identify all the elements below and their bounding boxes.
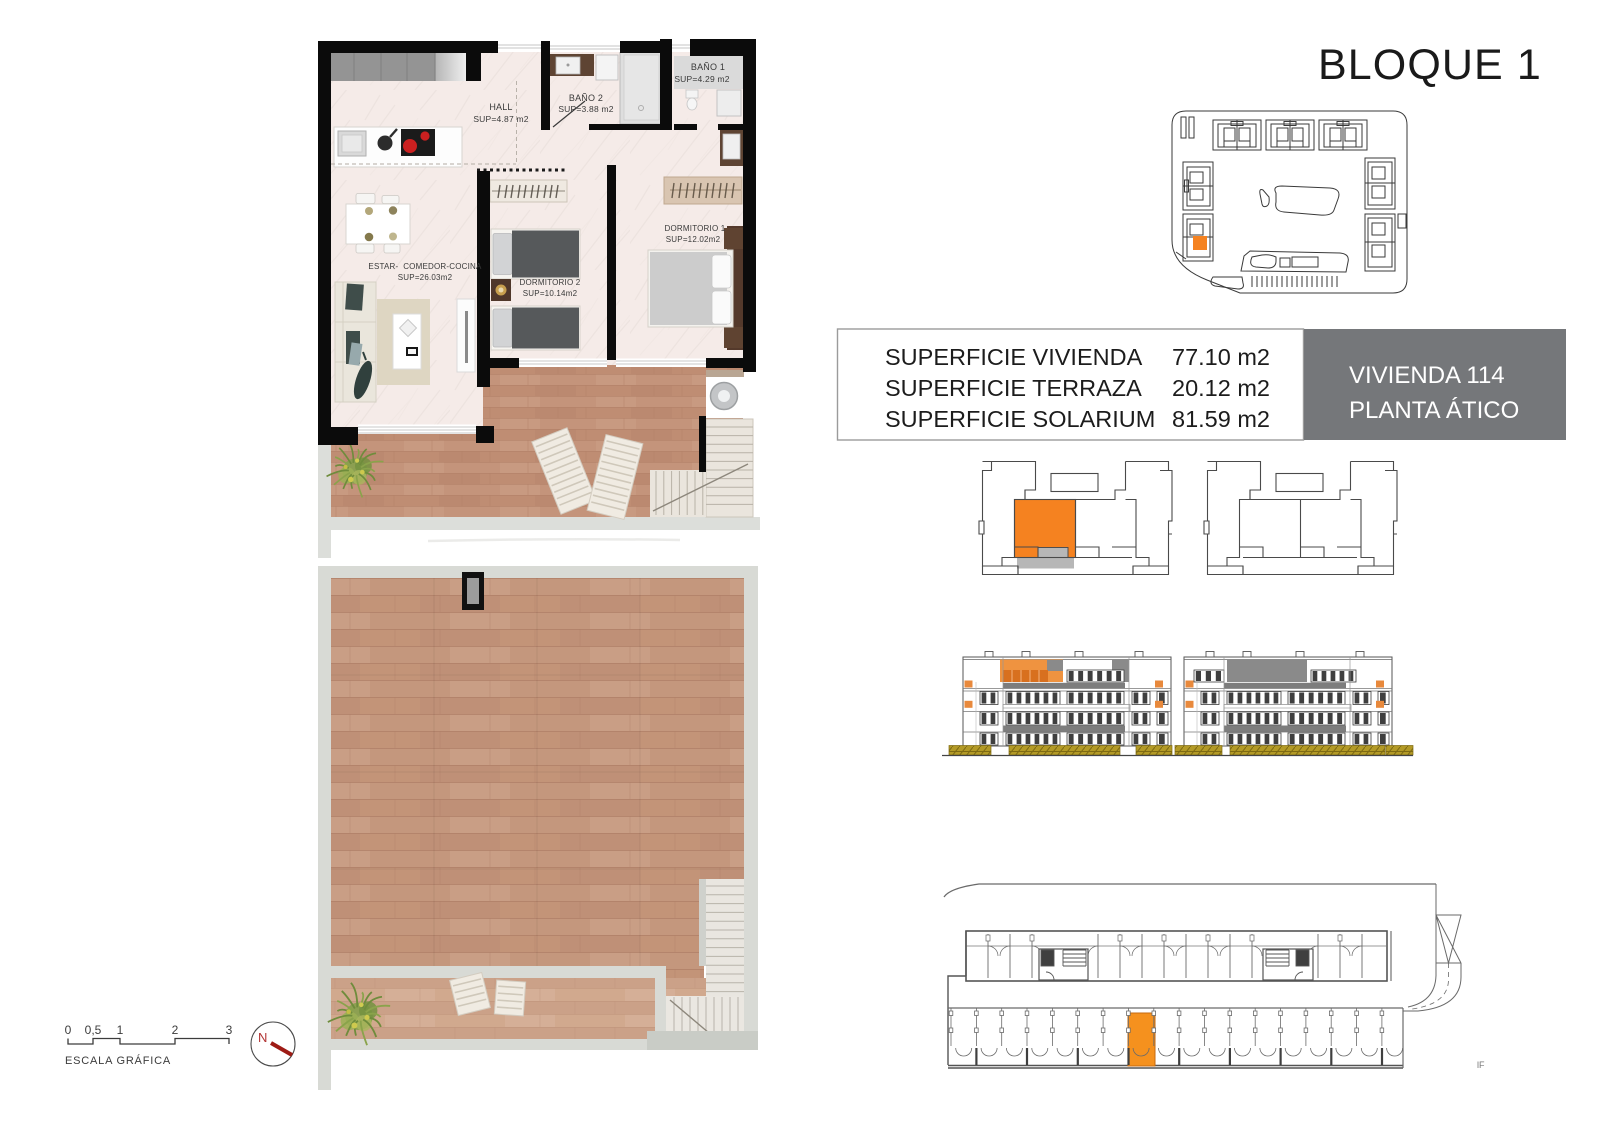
svg-text:DORMITORIO 1: DORMITORIO 1 — [665, 224, 726, 233]
svg-text:1: 1 — [117, 1023, 124, 1037]
svg-text:SUP=26.03m2: SUP=26.03m2 — [398, 273, 453, 282]
svg-text:SUP=12.02m2: SUP=12.02m2 — [666, 235, 721, 244]
svg-text:DORMITORIO 2: DORMITORIO 2 — [520, 278, 581, 287]
svg-text:N: N — [258, 1030, 267, 1045]
svg-text:lF: lF — [1477, 1060, 1485, 1070]
svg-text:ESCALA GRÁFICA: ESCALA GRÁFICA — [65, 1054, 171, 1067]
svg-text:77.10 m2: 77.10 m2 — [1172, 344, 1270, 370]
svg-text:81.59 m2: 81.59 m2 — [1172, 406, 1270, 432]
svg-text:PLANTA ÁTICO: PLANTA ÁTICO — [1349, 397, 1519, 424]
svg-text:BLOQUE 1: BLOQUE 1 — [1318, 41, 1542, 89]
svg-text:SUPERFICIE TERRAZA: SUPERFICIE TERRAZA — [885, 375, 1142, 401]
svg-text:0,5: 0,5 — [85, 1023, 102, 1037]
svg-text:SUP=4.87 m2: SUP=4.87 m2 — [473, 114, 528, 124]
svg-text:20.12 m2: 20.12 m2 — [1172, 375, 1270, 401]
svg-text:0: 0 — [65, 1023, 72, 1037]
svg-text:HALL: HALL — [489, 102, 512, 112]
svg-text:SUP=10.14m2: SUP=10.14m2 — [523, 289, 578, 298]
svg-text:BAÑO 2: BAÑO 2 — [569, 93, 603, 103]
svg-text:2: 2 — [172, 1023, 179, 1037]
svg-text:SUP=3.88 m2: SUP=3.88 m2 — [558, 104, 613, 114]
svg-text:SUPERFICIE VIVIENDA: SUPERFICIE VIVIENDA — [885, 344, 1143, 370]
svg-text:BAÑO 1: BAÑO 1 — [691, 62, 725, 72]
svg-text:ESTAR- COMEDOR-COCINA: ESTAR- COMEDOR-COCINA — [368, 262, 482, 271]
svg-text:SUPERFICIE SOLARIUM: SUPERFICIE SOLARIUM — [885, 406, 1155, 432]
svg-text:3: 3 — [226, 1023, 233, 1037]
svg-text:VIVIENDA 114: VIVIENDA 114 — [1349, 362, 1505, 389]
svg-text:SUP=4.29 m2: SUP=4.29 m2 — [674, 74, 729, 84]
